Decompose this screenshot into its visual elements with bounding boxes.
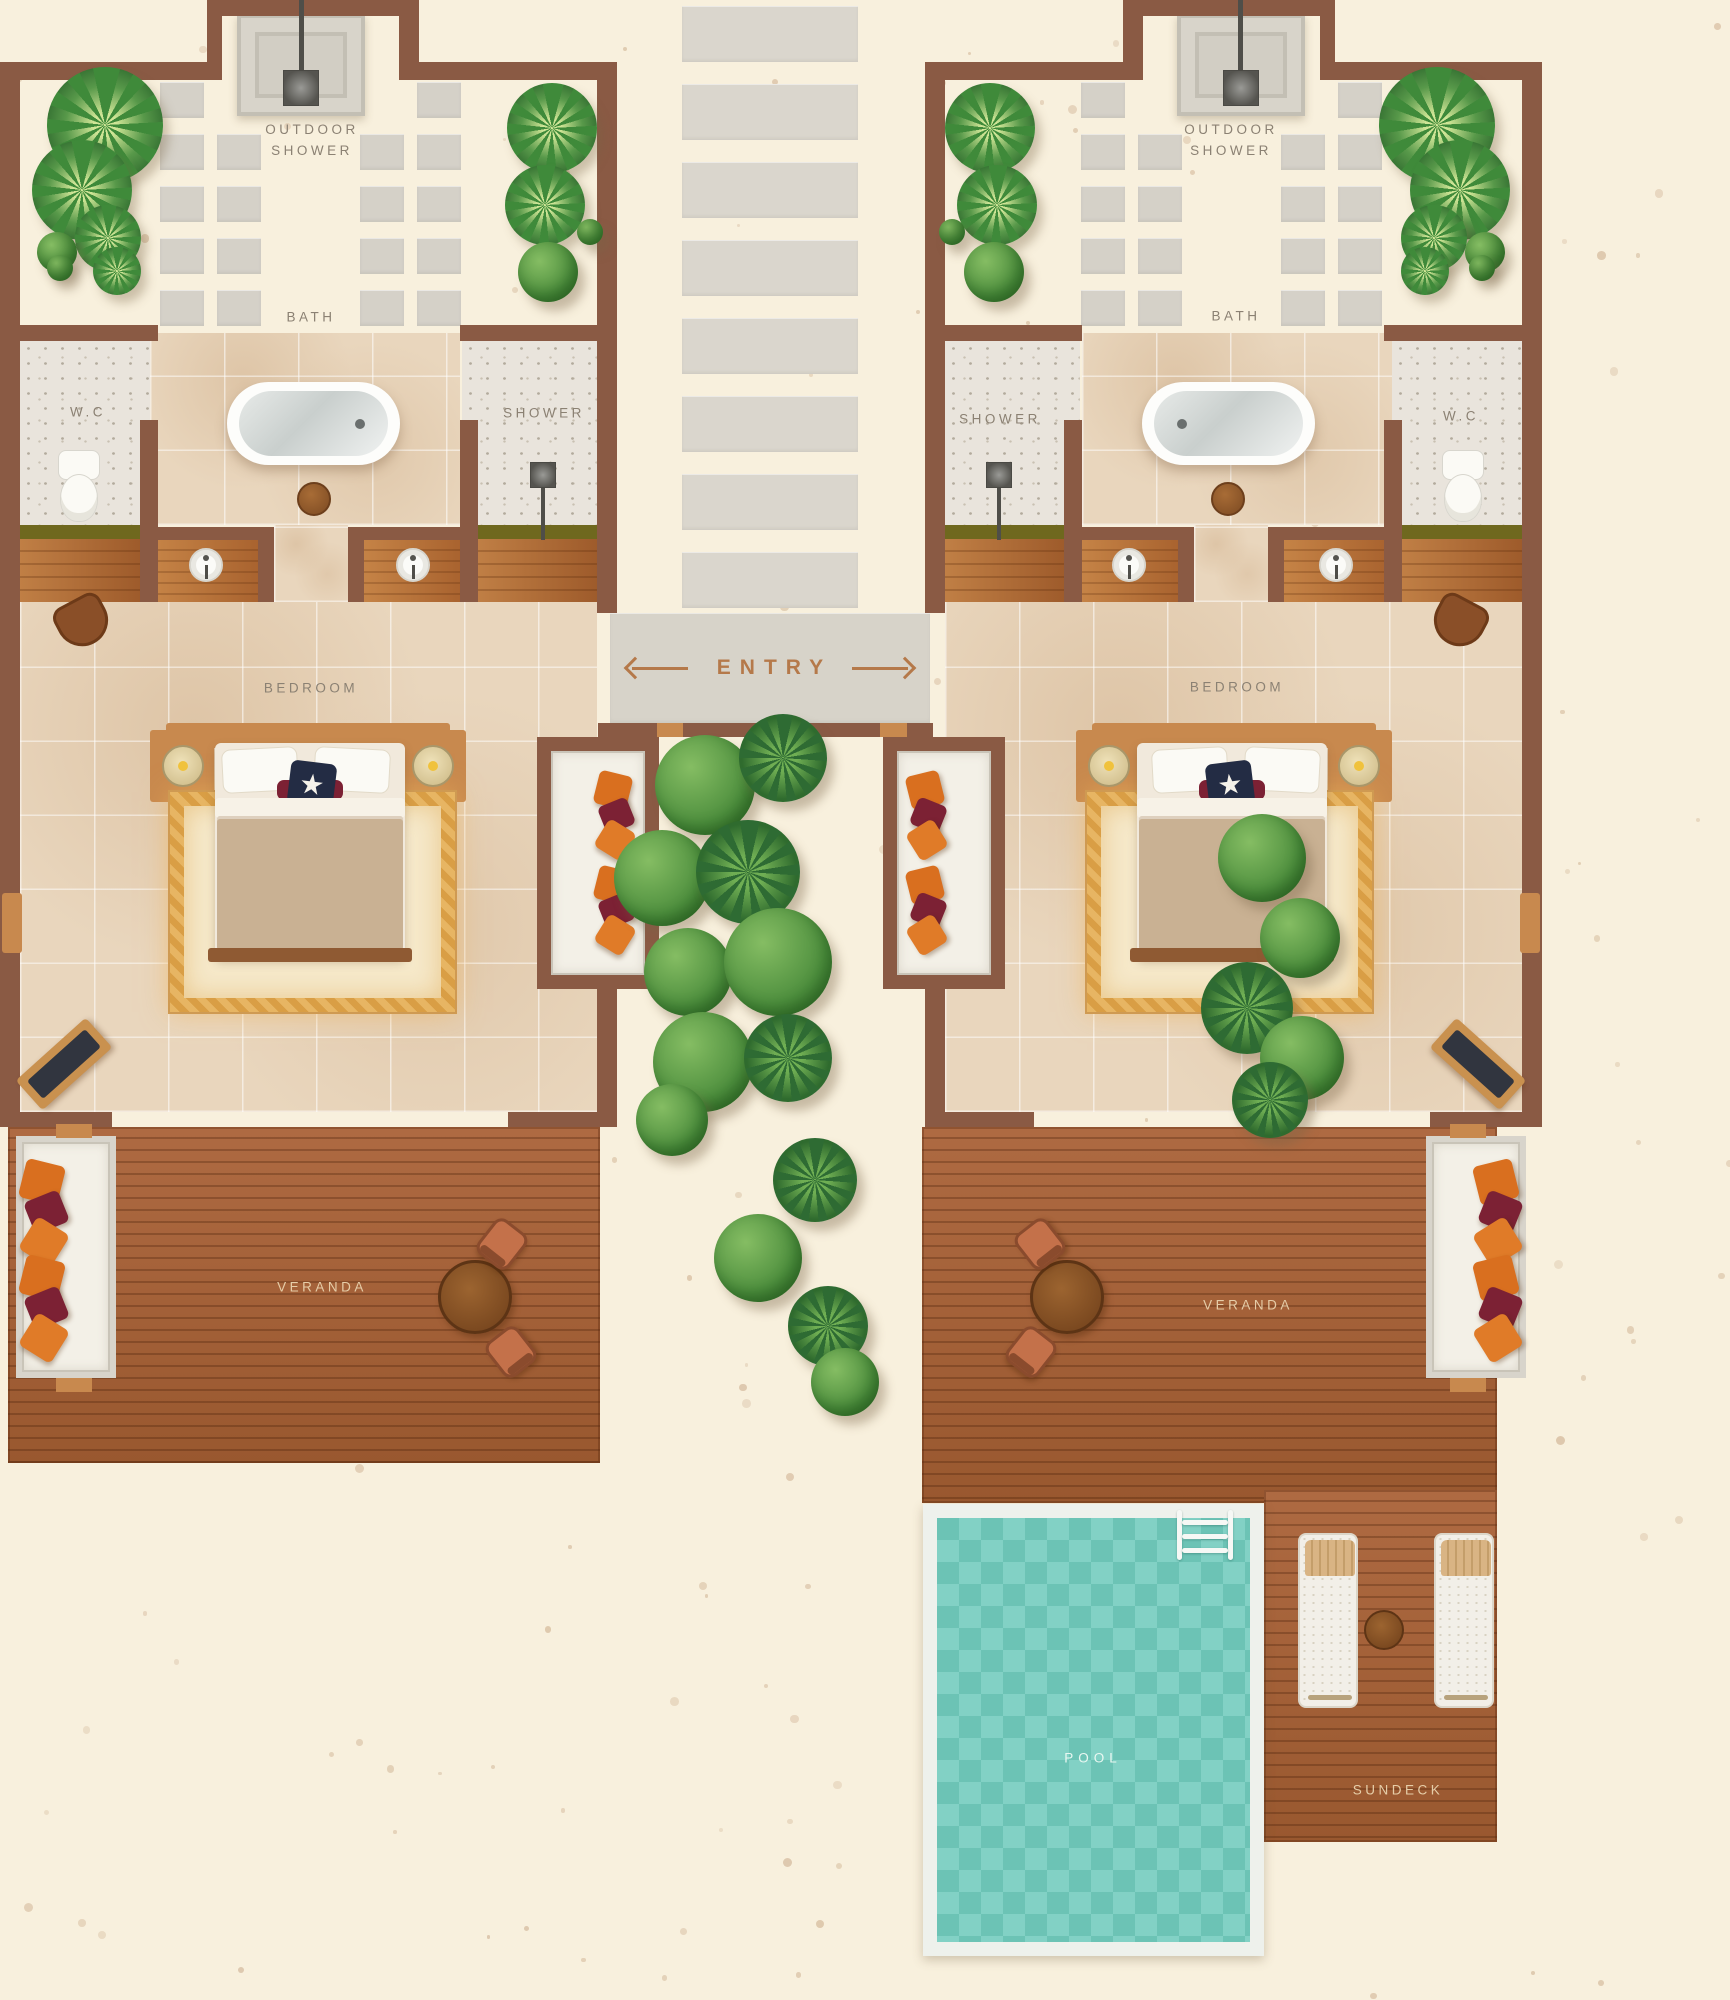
tree-bush <box>1260 898 1340 978</box>
tree-palm <box>739 714 827 802</box>
plant-agave-right <box>945 83 1035 173</box>
room-label-veranda-left: VERANDA <box>277 1278 367 1299</box>
plant-bush-right <box>964 242 1024 302</box>
room-label-bedroom-right: BEDROOM <box>1190 678 1284 699</box>
plant-bush-left <box>518 242 578 302</box>
plant-bush-left <box>47 255 73 281</box>
room-label-bath-left: BATH <box>286 308 335 329</box>
entry-label: ENTRY <box>708 656 832 680</box>
villa-floor-plan: ★★ OUTDOOR SHOWER OUTDOOR SHOWER BATH BA… <box>0 0 1730 2000</box>
plant-agave-left <box>505 165 585 245</box>
room-label-veranda-right: VERANDA <box>1203 1296 1293 1317</box>
plant-agave-left <box>507 83 597 173</box>
tree-bush <box>724 908 832 1016</box>
entry-sign: ENTRY <box>610 613 930 723</box>
tree-bush <box>1218 814 1306 902</box>
room-label-shower-right: SHOWER <box>959 410 1041 431</box>
tree-palm <box>1232 1062 1308 1138</box>
room-label-bedroom-left: BEDROOM <box>264 679 358 700</box>
foliage-layer <box>0 0 1730 2000</box>
plant-agave-right <box>957 165 1037 245</box>
entry-arrow-left-icon <box>627 660 688 676</box>
tree-bush <box>636 1084 708 1156</box>
tree-palm <box>744 1014 832 1102</box>
room-label-bath-right: BATH <box>1211 307 1260 328</box>
plant-bush-right <box>1469 255 1495 281</box>
plant-agave-right <box>1401 247 1449 295</box>
room-label-shower-left: SHOWER <box>503 404 585 425</box>
tree-bush <box>644 928 732 1016</box>
entry-arrow-right-icon <box>852 660 913 676</box>
tree-bush <box>714 1214 802 1302</box>
room-label-wc-right: W.C <box>1443 407 1479 428</box>
pool-label: POOL <box>1064 1749 1122 1770</box>
tree-bush <box>811 1348 879 1416</box>
room-label-outdoor-shower-right: OUTDOOR SHOWER <box>1184 120 1278 162</box>
plant-bush-left <box>577 219 603 245</box>
room-label-outdoor-shower-left: OUTDOOR SHOWER <box>265 120 359 162</box>
room-label-wc-left: W.C <box>70 403 106 424</box>
plant-bush-right <box>939 219 965 245</box>
tree-palm <box>773 1138 857 1222</box>
plant-agave-left <box>93 247 141 295</box>
sundeck-label: SUNDECK <box>1353 1781 1444 1802</box>
